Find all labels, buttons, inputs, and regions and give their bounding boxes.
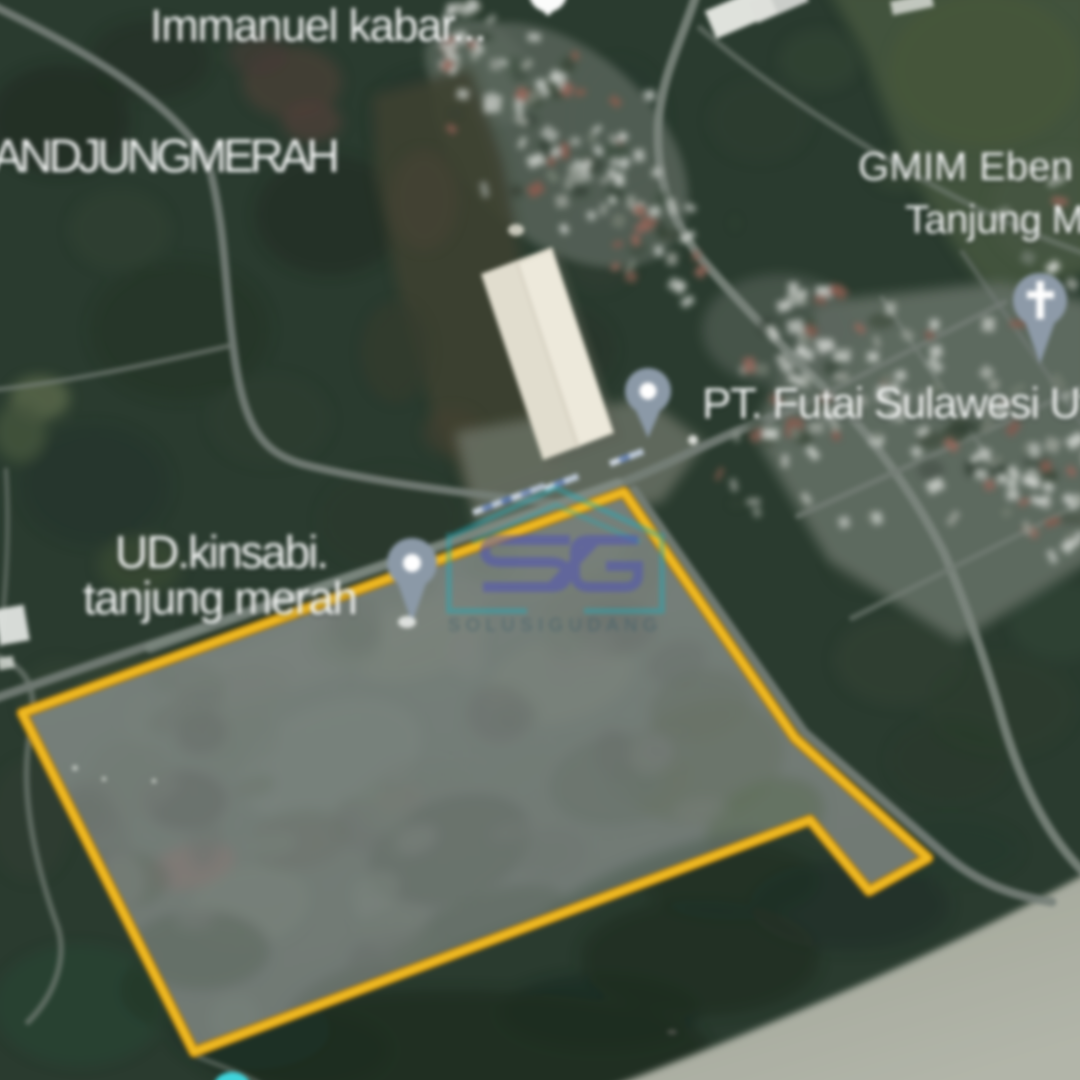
svg-text:Tanjung M: Tanjung M <box>905 198 1080 242</box>
svg-text:UD.kinsabi.: UD.kinsabi. <box>115 526 329 578</box>
svg-text:Immanuel kabar...: Immanuel kabar... <box>150 0 487 51</box>
svg-text:PT. Futai Sulawesi Ut: PT. Futai Sulawesi Ut <box>702 379 1080 428</box>
svg-text:GMIM Eben: GMIM Eben <box>858 145 1073 189</box>
svg-text:tanjung merah: tanjung merah <box>83 572 358 624</box>
svg-text:SOLUSIGUDANG: SOLUSIGUDANG <box>448 615 666 635</box>
svg-text:ANDJUNGMERAH: ANDJUNGMERAH <box>0 129 340 182</box>
